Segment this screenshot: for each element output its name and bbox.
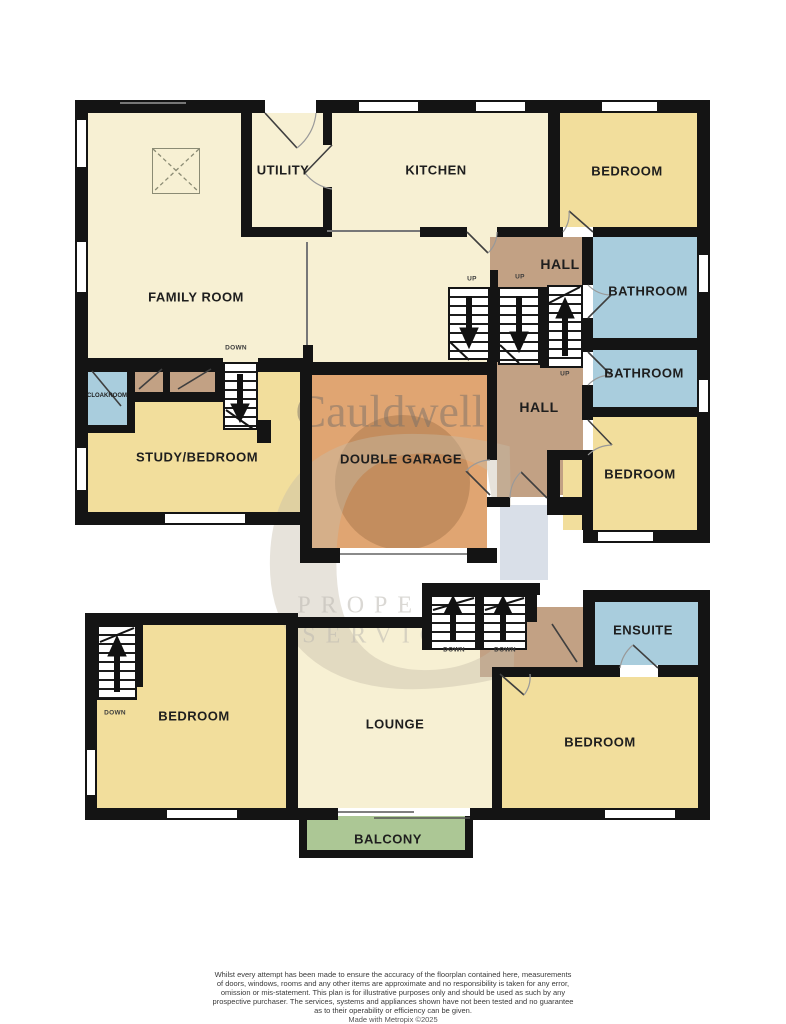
window [167,808,237,820]
staircase [448,287,490,360]
wall-segment [547,460,560,497]
disclaimer: Whilst every attempt has been made to en… [0,970,786,1024]
disclaimer-line: omission or mis-statement. This plan is … [0,988,786,997]
wall-segment [85,358,223,372]
wall-segment [85,808,167,820]
window [85,750,97,795]
window [476,100,525,113]
room-label-hall-main: HALL [519,399,558,415]
wall-segment [299,850,473,858]
wall-segment [490,270,498,362]
stair-label-up: UP [467,276,477,283]
room-label-garage: DOUBLE GARAGE [340,452,462,467]
wall-segment [300,548,340,563]
wall-segment [697,292,710,380]
wall-segment [133,392,223,402]
wall-segment [467,548,497,563]
wall-segment [697,412,710,542]
staircase [430,595,477,650]
room-label-cloakroom: CLOAKROOM [87,393,127,399]
wall-segment [527,595,537,622]
wall-segment [548,103,560,237]
wall-segment [582,407,697,417]
wall-segment [420,227,467,237]
wall-segment [75,512,165,525]
wall-segment [85,613,97,750]
room-label-ensuite: ENSUITE [613,623,673,638]
room-label-family: FAMILY ROOM [148,290,244,305]
stair-label-down: DOWN [225,345,247,352]
stair-label-down: DOWN [104,710,126,717]
window [697,255,710,292]
window [75,448,88,490]
wall-segment [492,667,502,820]
room-label-bedroom-left: BEDROOM [158,709,229,724]
room-label-hall-upper: HALL [540,256,579,272]
window [359,100,418,113]
room-label-bedroom-right: BEDROOM [604,467,675,482]
wall-segment [583,590,595,677]
wall-segment [583,590,710,602]
wall-segment [286,617,298,820]
wall-segment [163,367,170,392]
room-label-study: STUDY/BEDROOM [136,450,258,465]
window [697,380,710,412]
staircase [498,287,540,365]
floorplan-canvas: C Cauldwell PROPERTY SERVICES [0,0,786,1024]
wall-segment [583,530,598,543]
wall-segment [487,497,510,507]
ceiling-hatch-square [152,148,200,194]
wall-segment [241,227,327,237]
staircase [97,625,137,700]
room-label-lounge: LOUNGE [366,717,425,732]
wall-segment [88,425,135,433]
window [75,242,88,292]
wall-segment [698,590,710,820]
room-label-utility: UTILITY [257,163,310,178]
wall-segment [582,455,593,530]
wall-segment [241,100,252,237]
opening-line [327,230,420,232]
stair-label-down: DOWN [494,647,516,654]
wall-segment [582,237,593,285]
room-label-bathroom-1: BATHROOM [608,284,688,299]
wall-segment [257,420,271,443]
wall-segment [85,613,298,625]
wall-segment [525,100,602,113]
wall-segment [697,105,710,255]
stair-label-up: UP [515,274,525,281]
wall-segment [422,595,430,650]
stair-label-up: UP [560,371,570,378]
wall-segment [502,808,605,820]
disclaimer-line: as to their operability or efficiency ca… [0,1006,786,1015]
credit-line: Made with Metropix ©2025 [0,1015,786,1024]
stair-label-down: DOWN [443,647,465,654]
room-label-bathroom-2: BATHROOM [604,366,684,381]
wall-segment [593,227,697,237]
window [605,808,675,820]
wall-segment [653,530,710,543]
window [75,120,88,167]
wall-segment [582,338,697,350]
room-label-balcony: BALCONY [354,832,422,847]
staircase [547,285,583,368]
room-label-bedroom-top: BEDROOM [591,164,662,179]
wall-segment [75,100,88,120]
window [165,512,245,525]
wall-segment [422,583,540,595]
room-label-bedroom-right-lower: BEDROOM [564,735,635,750]
window [602,100,657,113]
window [598,530,653,543]
wall-segment [323,103,332,145]
disclaimer-line: of doors, windows, rooms and any other i… [0,979,786,988]
wall-segment [418,100,476,113]
watermark-brand: Cauldwell [295,385,484,438]
wall-segment [300,362,312,548]
wall-segment [293,617,430,628]
wall-segment [547,497,585,515]
eave-line [120,102,186,104]
staircase [482,595,527,650]
divider-line [306,242,308,348]
wall-segment [312,362,490,375]
staircase [223,362,258,430]
wall-segment [540,287,547,368]
room-label-kitchen: KITCHEN [405,163,466,178]
wall-segment [497,227,548,237]
wall-segment [75,167,88,242]
wall-segment [492,667,583,677]
disclaimer-line: prospective purchaser. The services, sys… [0,997,786,1006]
disclaimer-line: Whilst every attempt has been made to en… [0,970,786,979]
